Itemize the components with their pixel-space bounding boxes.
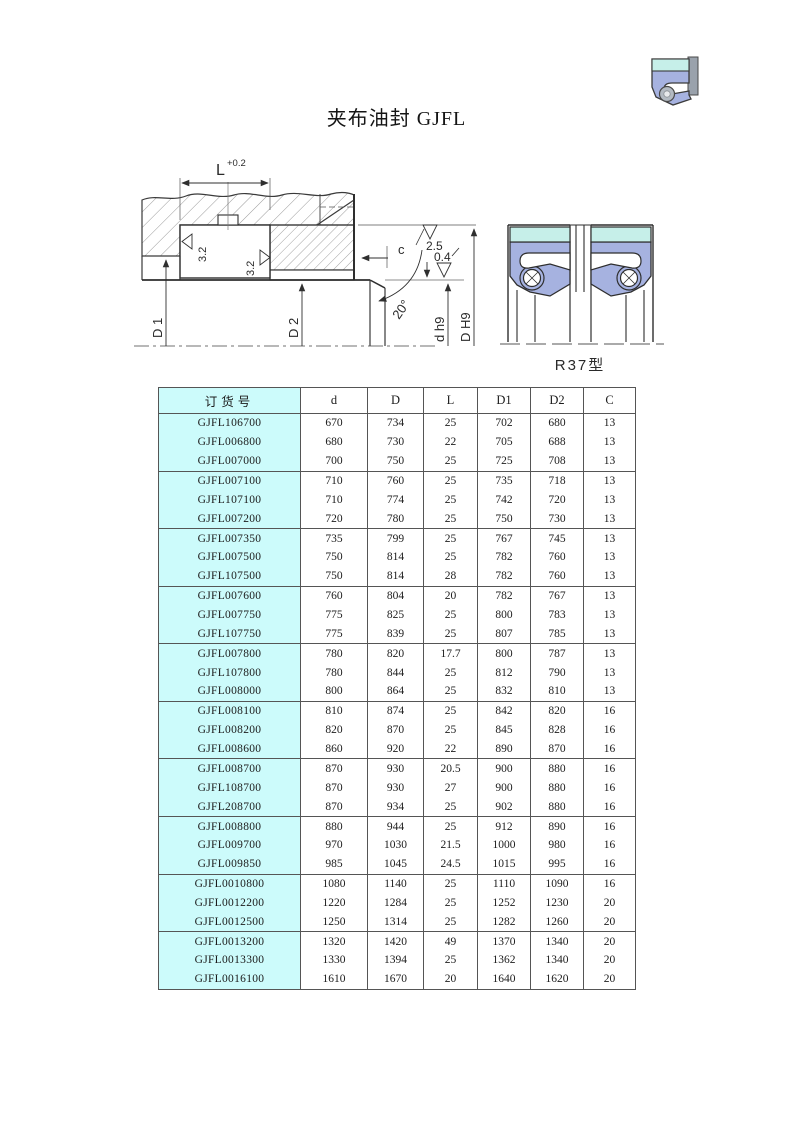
table-row: GJFL0080008008642583281013 — [159, 682, 636, 701]
dimension-cell: 900 — [478, 759, 531, 778]
dimension-cell: 980 — [531, 836, 584, 855]
dimension-cell: 13 — [584, 548, 636, 567]
dimension-cell: 750 — [301, 548, 368, 567]
dimension-cell: 20 — [584, 970, 636, 990]
dimension-cell: 720 — [301, 509, 368, 528]
dimension-cell: 1250 — [301, 912, 368, 931]
dimension-cell: 13 — [584, 663, 636, 682]
table-row: GJFL0088008809442591289016 — [159, 817, 636, 836]
order-number-cell: GJFL007500 — [159, 548, 301, 567]
table-header-row: 订货号 d D L D1 D2 C — [159, 388, 636, 414]
dimension-cell: 785 — [531, 624, 584, 643]
seal-profile-drawing: R37型 — [484, 192, 684, 387]
dimension-cell: 930 — [368, 778, 424, 797]
dimension-cell: 774 — [368, 491, 424, 510]
order-number-cell: GJFL0013300 — [159, 951, 301, 970]
table-row: GJFL001250012501314251282126020 — [159, 912, 636, 931]
dimension-cell: 25 — [424, 491, 478, 510]
dimension-cell: 13 — [584, 586, 636, 605]
dimension-cell: 710 — [301, 491, 368, 510]
dimension-cell: 16 — [584, 817, 636, 836]
dimension-cell: 832 — [478, 682, 531, 701]
dimension-cell: 870 — [301, 778, 368, 797]
dimension-cell: 25 — [424, 682, 478, 701]
dimension-cell: 1362 — [478, 951, 531, 970]
order-number-cell: GJFL007100 — [159, 471, 301, 490]
dimension-cell: 1090 — [531, 874, 584, 893]
dimension-cell: 13 — [584, 529, 636, 548]
profile-type-label: R37型 — [555, 357, 606, 374]
dimension-cell: 912 — [478, 817, 531, 836]
dimension-cell: 783 — [531, 606, 584, 625]
seal-half-right — [591, 225, 653, 342]
dimension-cell: 800 — [478, 644, 531, 663]
dimension-cell: 16 — [584, 855, 636, 874]
seal-half-left — [508, 225, 570, 342]
dimension-cell: 828 — [531, 721, 584, 740]
dimension-cell: 16 — [584, 740, 636, 759]
dimension-cell: 25 — [424, 624, 478, 643]
dimension-cell: 845 — [478, 721, 531, 740]
installation-drawing: L +0.2 3.2 3.2 c 2.5 0.4 20° D 1 D 2 d h… — [126, 150, 488, 382]
dimension-cell: 814 — [368, 548, 424, 567]
table-row: GJFL1067006707342570268013 — [159, 414, 636, 433]
order-number-cell: GJFL007350 — [159, 529, 301, 548]
dimension-cell: 25 — [424, 606, 478, 625]
dimension-cell: 820 — [531, 701, 584, 720]
dimension-cell: 27 — [424, 778, 478, 797]
order-number-cell: GJFL007750 — [159, 606, 301, 625]
dimension-cell: 880 — [531, 759, 584, 778]
table-row: GJFL0077507758252580078313 — [159, 606, 636, 625]
dimension-cell: 25 — [424, 912, 478, 931]
dimension-cell: 13 — [584, 624, 636, 643]
order-number-cell: GJFL007600 — [159, 586, 301, 605]
dimension-cell: 13 — [584, 433, 636, 452]
dimension-cell: 880 — [301, 817, 368, 836]
order-number-cell: GJFL008200 — [159, 721, 301, 740]
table-row: GJFL001080010801140251110109016 — [159, 874, 636, 893]
order-number-cell: GJFL108700 — [159, 778, 301, 797]
dimension-cell: 760 — [301, 586, 368, 605]
column-header-order-number: 订货号 — [159, 388, 301, 414]
dimension-cell: 16 — [584, 797, 636, 816]
dimension-cell: 13 — [584, 452, 636, 471]
dimension-cell: 782 — [478, 548, 531, 567]
table-row: GJFL0073507357992576774513 — [159, 529, 636, 548]
dimension-cell: 680 — [301, 433, 368, 452]
dimension-cell: 750 — [478, 509, 531, 528]
dimension-cell: 25 — [424, 797, 478, 816]
dimension-cell: 890 — [531, 817, 584, 836]
dimension-cell: 710 — [301, 471, 368, 490]
dimension-cell: 807 — [478, 624, 531, 643]
dimension-cell: 842 — [478, 701, 531, 720]
dimension-cell: 880 — [531, 778, 584, 797]
dimension-cell: 22 — [424, 740, 478, 759]
table-row: GJFL001220012201284251252123020 — [159, 894, 636, 913]
order-number-cell: GJFL0016100 — [159, 970, 301, 990]
order-number-cell: GJFL107750 — [159, 624, 301, 643]
dimension-cell: 820 — [301, 721, 368, 740]
dim-L-tolerance: +0.2 — [227, 158, 246, 169]
dimension-cell: 930 — [368, 759, 424, 778]
dimension-cell: 20 — [584, 932, 636, 951]
table-row: GJFL1077507758392580778513 — [159, 624, 636, 643]
column-header-L: L — [424, 388, 478, 414]
page-title: 夹布油封 GJFL — [0, 102, 793, 131]
catalog-page: 夹布油封 GJFL — [0, 0, 793, 1122]
order-number-cell: GJFL0010800 — [159, 874, 301, 893]
dimension-cell: 782 — [478, 567, 531, 586]
dimension-cell: 844 — [368, 663, 424, 682]
table-row: GJFL0081008108742584282016 — [159, 701, 636, 720]
dimension-cell: 16 — [584, 836, 636, 855]
dimension-cell: 28 — [424, 567, 478, 586]
dimension-cell: 735 — [478, 471, 531, 490]
order-number-cell: GJFL008600 — [159, 740, 301, 759]
dimension-cell: 760 — [531, 548, 584, 567]
dimension-cell: 804 — [368, 586, 424, 605]
dim-D2-label: D 2 — [286, 318, 301, 338]
dimension-cell: 1670 — [368, 970, 424, 990]
dimension-cell: 750 — [301, 567, 368, 586]
dimension-cell: 730 — [531, 509, 584, 528]
order-number-cell: GJFL0013200 — [159, 932, 301, 951]
dimension-cell: 1330 — [301, 951, 368, 970]
dim-L-label: L — [216, 162, 225, 179]
column-header-D2: D2 — [531, 388, 584, 414]
dimension-cell: 760 — [368, 471, 424, 490]
order-number-cell: GJFL009700 — [159, 836, 301, 855]
dimension-cell: 25 — [424, 509, 478, 528]
dimension-cell: 1000 — [478, 836, 531, 855]
table-row: GJFL1087008709302790088016 — [159, 778, 636, 797]
dimension-cell: 25 — [424, 817, 478, 836]
dimension-cell: 860 — [301, 740, 368, 759]
dimension-cell: 1284 — [368, 894, 424, 913]
dimension-cell: 870 — [531, 740, 584, 759]
order-number-cell: GJFL107500 — [159, 567, 301, 586]
table-row: GJFL0068006807302270568813 — [159, 433, 636, 452]
dimension-cell: 680 — [531, 414, 584, 433]
dimension-cell: 775 — [301, 606, 368, 625]
dimension-cell: 775 — [301, 624, 368, 643]
table-row: GJFL001610016101670201640162020 — [159, 970, 636, 990]
table-row: GJFL1071007107742574272013 — [159, 491, 636, 510]
dimension-cell: 800 — [301, 682, 368, 701]
table-row: GJFL1075007508142878276013 — [159, 567, 636, 586]
dimension-cell: 1320 — [301, 932, 368, 951]
dimension-cell: 25 — [424, 414, 478, 433]
dimension-cell: 13 — [584, 414, 636, 433]
dimension-cell: 25 — [424, 874, 478, 893]
dimension-cell: 700 — [301, 452, 368, 471]
table-row: GJFL0072007207802575073013 — [159, 509, 636, 528]
dimension-cell: 16 — [584, 778, 636, 797]
dimension-cell: 16 — [584, 721, 636, 740]
dimension-cell: 864 — [368, 682, 424, 701]
dimension-cell: 25 — [424, 663, 478, 682]
table-row: GJFL0076007608042078276713 — [159, 586, 636, 605]
order-number-cell: GJFL208700 — [159, 797, 301, 816]
dimension-cell: 870 — [301, 759, 368, 778]
dimension-cell: 20 — [584, 951, 636, 970]
dimension-cell: 820 — [368, 644, 424, 663]
dimension-cell: 870 — [301, 797, 368, 816]
roughness-0-4: 0.4 — [434, 250, 451, 264]
dimension-cell: 1140 — [368, 874, 424, 893]
chamfer-angle-label: 20° — [389, 297, 413, 322]
dimension-cell: 1620 — [531, 970, 584, 990]
dimension-cell: 780 — [368, 509, 424, 528]
dimension-cell: 13 — [584, 471, 636, 490]
order-number-cell: GJFL0012200 — [159, 894, 301, 913]
dimension-cell: 1282 — [478, 912, 531, 931]
dimension-cell: 799 — [368, 529, 424, 548]
dimension-cell: 25 — [424, 951, 478, 970]
order-number-cell: GJFL106700 — [159, 414, 301, 433]
dimension-cell: 1110 — [478, 874, 531, 893]
spec-table: 订货号 d D L D1 D2 C GJFL106700670734257026… — [158, 387, 636, 990]
dimension-cell: 880 — [531, 797, 584, 816]
dimension-cell: 20 — [424, 970, 478, 990]
dimension-cell: 13 — [584, 644, 636, 663]
column-header-C: C — [584, 388, 636, 414]
order-number-cell: GJFL107100 — [159, 491, 301, 510]
dimension-cell: 970 — [301, 836, 368, 855]
table-row: GJFL001330013301394251362134020 — [159, 951, 636, 970]
dimension-cell: 787 — [531, 644, 584, 663]
dimension-cell: 49 — [424, 932, 478, 951]
dimension-cell: 902 — [478, 797, 531, 816]
dimension-cell: 1045 — [368, 855, 424, 874]
order-number-cell: GJFL008800 — [159, 817, 301, 836]
dimension-cell: 800 — [478, 606, 531, 625]
dimension-cell: 735 — [301, 529, 368, 548]
dimension-cell: 810 — [301, 701, 368, 720]
dimension-cell: 688 — [531, 433, 584, 452]
table-row: GJFL001320013201420491370134020 — [159, 932, 636, 951]
dimension-cell: 20 — [584, 912, 636, 931]
dimension-cell: 20.5 — [424, 759, 478, 778]
dimension-cell: 16 — [584, 874, 636, 893]
dimension-cell: 812 — [478, 663, 531, 682]
dimension-cell: 760 — [531, 567, 584, 586]
table-row: GJFL00780078082017.780078713 — [159, 644, 636, 663]
dimension-cell: 1610 — [301, 970, 368, 990]
dimension-cell: 874 — [368, 701, 424, 720]
dimension-cell: 1370 — [478, 932, 531, 951]
table-row: GJFL2087008709342590288016 — [159, 797, 636, 816]
dim-bore-label: D H9 — [458, 312, 473, 342]
dimension-cell: 767 — [478, 529, 531, 548]
dimension-cell: 890 — [478, 740, 531, 759]
dimension-cell: 25 — [424, 721, 478, 740]
roughness-3-2-left: 3.2 — [197, 247, 209, 262]
dimension-cell: 16 — [584, 759, 636, 778]
dimension-cell: 1340 — [531, 932, 584, 951]
table-row: GJFL1078007808442581279013 — [159, 663, 636, 682]
dimension-cell: 1640 — [478, 970, 531, 990]
order-number-cell: GJFL007000 — [159, 452, 301, 471]
dimension-cell: 708 — [531, 452, 584, 471]
column-header-D: D — [368, 388, 424, 414]
order-number-cell: GJFL008000 — [159, 682, 301, 701]
order-number-cell: GJFL107800 — [159, 663, 301, 682]
dimension-cell: 13 — [584, 491, 636, 510]
dimension-cell: 767 — [531, 586, 584, 605]
dimension-cell: 21.5 — [424, 836, 478, 855]
dimension-cell: 745 — [531, 529, 584, 548]
seal-profile-logo-icon — [643, 33, 731, 108]
dimension-cell: 1220 — [301, 894, 368, 913]
dimension-cell: 1340 — [531, 951, 584, 970]
dimension-cell: 720 — [531, 491, 584, 510]
dimension-cell: 25 — [424, 471, 478, 490]
column-header-D1: D1 — [478, 388, 531, 414]
dimension-cell: 839 — [368, 624, 424, 643]
spec-table-body: GJFL1067006707342570268013GJFL0068006807… — [159, 414, 636, 990]
dim-shaft-label: d h9 — [432, 317, 447, 342]
table-row: GJFL0075007508142578276013 — [159, 548, 636, 567]
order-number-cell: GJFL009850 — [159, 855, 301, 874]
dimension-cell: 944 — [368, 817, 424, 836]
table-row: GJFL0071007107602573571813 — [159, 471, 636, 490]
order-number-cell: GJFL007800 — [159, 644, 301, 663]
dimension-cell: 702 — [478, 414, 531, 433]
dimension-cell: 1015 — [478, 855, 531, 874]
dimension-cell: 1030 — [368, 836, 424, 855]
table-row: GJFL0082008208702584582816 — [159, 721, 636, 740]
dimension-cell: 1314 — [368, 912, 424, 931]
dimension-cell: 24.5 — [424, 855, 478, 874]
dimension-cell: 1394 — [368, 951, 424, 970]
dimension-cell: 814 — [368, 567, 424, 586]
dimension-cell: 16 — [584, 701, 636, 720]
dimension-cell: 734 — [368, 414, 424, 433]
dimension-cell: 13 — [584, 606, 636, 625]
seal-section — [270, 225, 354, 270]
dimension-cell: 1260 — [531, 912, 584, 931]
dimension-cell: 705 — [478, 433, 531, 452]
dimension-cell: 782 — [478, 586, 531, 605]
dimension-cell: 1080 — [301, 874, 368, 893]
column-header-d: d — [301, 388, 368, 414]
dimension-cell: 13 — [584, 567, 636, 586]
dimension-cell: 995 — [531, 855, 584, 874]
dimension-cell: 25 — [424, 701, 478, 720]
dim-D1-label: D 1 — [150, 318, 165, 338]
order-number-cell: GJFL0012500 — [159, 912, 301, 931]
dimension-cell: 810 — [531, 682, 584, 701]
dimension-cell: 780 — [301, 644, 368, 663]
table-row: GJFL009850985104524.5101599516 — [159, 855, 636, 874]
dim-c-label: c — [398, 242, 405, 257]
dimension-cell: 780 — [301, 663, 368, 682]
table-row: GJFL0086008609202289087016 — [159, 740, 636, 759]
dimension-cell: 920 — [368, 740, 424, 759]
table-row: GJFL009700970103021.5100098016 — [159, 836, 636, 855]
dimension-cell: 25 — [424, 894, 478, 913]
dimension-cell: 985 — [301, 855, 368, 874]
dimension-cell: 742 — [478, 491, 531, 510]
dimension-cell: 13 — [584, 682, 636, 701]
order-number-cell: GJFL008700 — [159, 759, 301, 778]
dimension-cell: 13 — [584, 509, 636, 528]
table-row: GJFL00870087093020.590088016 — [159, 759, 636, 778]
dimension-cell: 20 — [424, 586, 478, 605]
dimension-cell: 900 — [478, 778, 531, 797]
dimension-cell: 750 — [368, 452, 424, 471]
dimension-cell: 25 — [424, 452, 478, 471]
roughness-3-2-right: 3.2 — [245, 261, 257, 276]
order-number-cell: GJFL008100 — [159, 701, 301, 720]
dimension-cell: 670 — [301, 414, 368, 433]
dimension-cell: 20 — [584, 894, 636, 913]
dimension-cell: 25 — [424, 529, 478, 548]
dimension-cell: 1252 — [478, 894, 531, 913]
order-number-cell: GJFL006800 — [159, 433, 301, 452]
dimension-cell: 725 — [478, 452, 531, 471]
dimension-cell: 718 — [531, 471, 584, 490]
dimension-cell: 790 — [531, 663, 584, 682]
dimension-cell: 870 — [368, 721, 424, 740]
dimension-cell: 1420 — [368, 932, 424, 951]
dimension-cell: 17.7 — [424, 644, 478, 663]
table-row: GJFL0070007007502572570813 — [159, 452, 636, 471]
dimension-cell: 25 — [424, 548, 478, 567]
dimension-cell: 22 — [424, 433, 478, 452]
dimension-cell: 825 — [368, 606, 424, 625]
order-number-cell: GJFL007200 — [159, 509, 301, 528]
dimension-cell: 934 — [368, 797, 424, 816]
dimension-cell: 1230 — [531, 894, 584, 913]
dimension-cell: 730 — [368, 433, 424, 452]
